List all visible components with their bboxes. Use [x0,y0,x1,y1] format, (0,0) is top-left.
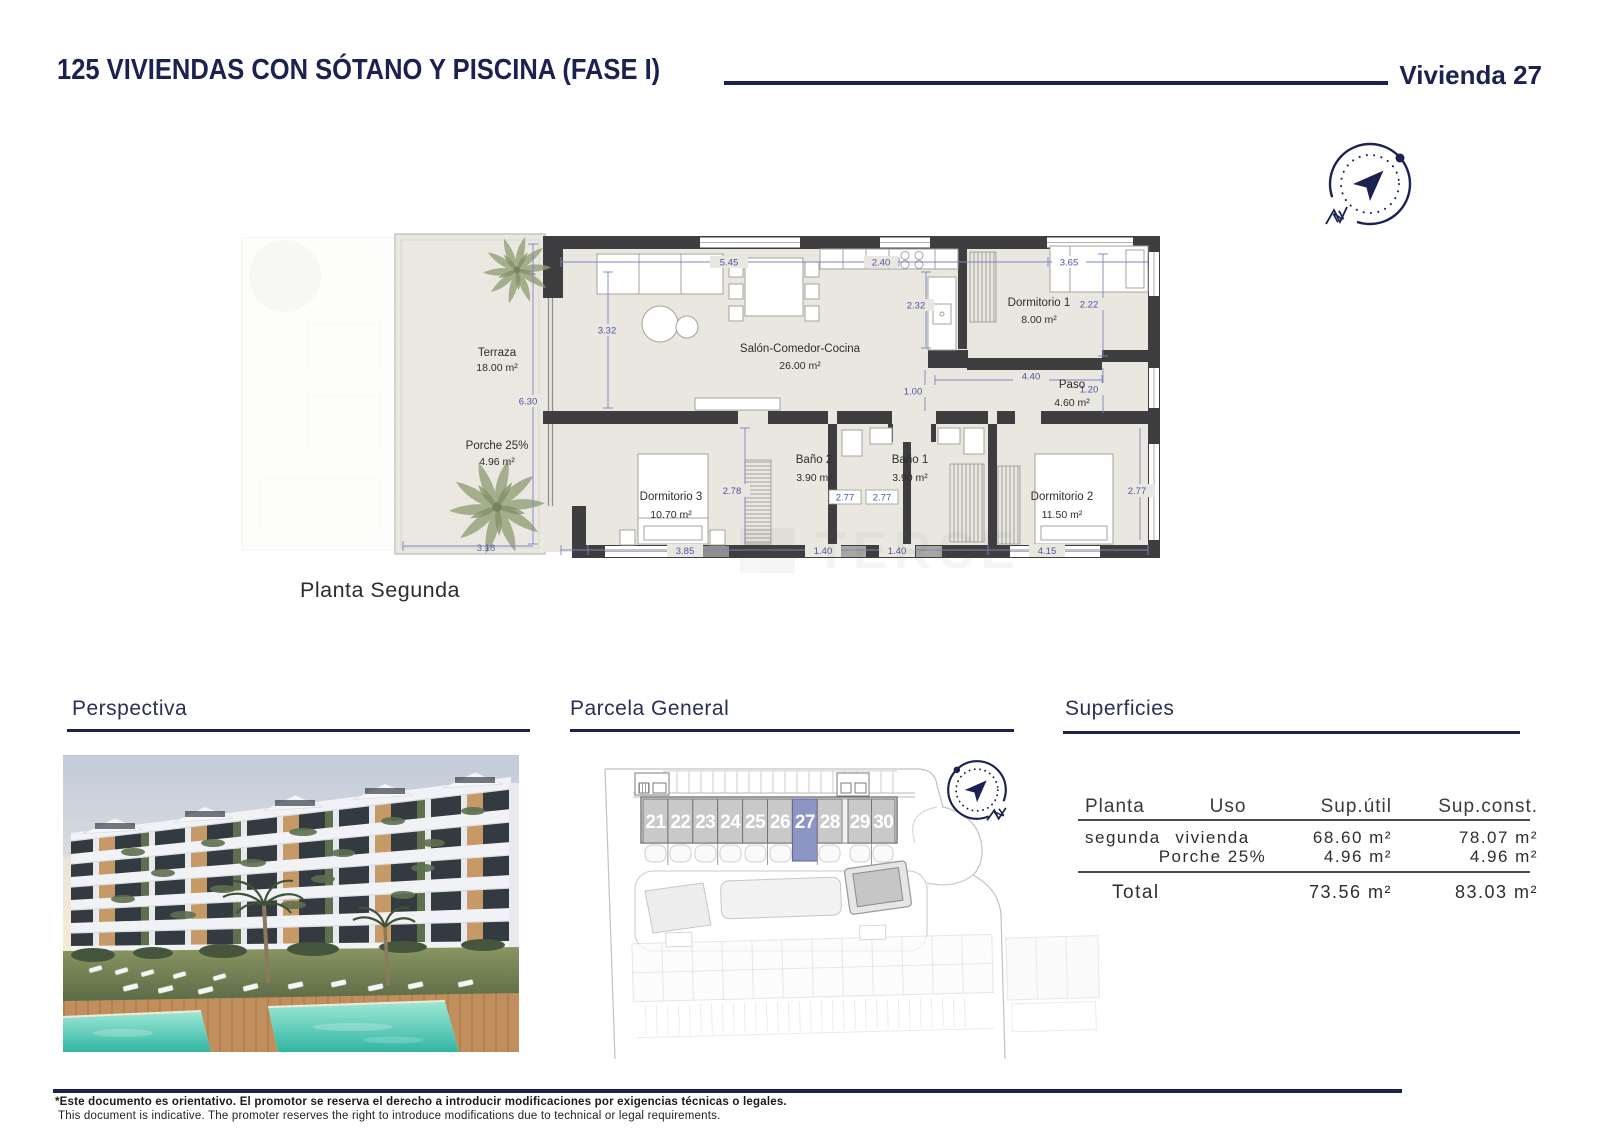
site-unit-label: 22 [670,812,690,833]
dim-label: 2.77 [836,493,855,504]
site-parking-top [633,771,915,797]
dim-label: 3.85 [676,546,695,557]
footer-rule [53,1089,1402,1093]
dim-label: 2.32 [907,301,926,312]
compass-arrow [1353,162,1392,201]
perspective-render [63,755,519,1052]
dim-label: 2.22 [1080,300,1099,311]
unit-label: Vivienda 27 [1399,60,1542,91]
section-superficies-title: Superficies [1065,697,1174,721]
room-area-salon: 26.00 m² [779,360,821,372]
room-label-dormitorio1: Dormitorio 1 [1008,297,1071,309]
room-label-dormitorio3: Dormitorio 3 [640,491,703,503]
site-unit-label: 29 [850,812,870,833]
section-perspectiva-title: Perspectiva [72,697,187,721]
cell-sup-const: 4.96 m² [1380,847,1538,867]
site-unit-label: 24 [720,812,741,833]
cell-sup-util: 4.96 m² [1240,847,1392,867]
dim-label: 4.40 [1022,372,1041,383]
site-phase2-strip [632,920,1101,1042]
site-building-strip: 21 22 23 24 25 26 27 28 29 30 [641,797,897,865]
site-unit-label: 23 [695,812,715,833]
header-rule [724,81,1388,85]
col-header-planta: Planta [1085,796,1145,818]
cell-sup-const: 78.07 m² [1380,828,1538,848]
north-compass-icon: N [1322,136,1418,232]
room-label-porche: Porche 25% [466,440,529,452]
site-unit-label: 25 [745,812,766,833]
room-area-porche: 4.96 m² [479,456,515,468]
dim-label: 2.77 [873,493,892,504]
room-area-dormitorio3: 10.70 m² [650,509,692,521]
section-parcela-title: Parcela General [570,697,729,721]
site-unit-numbers: 21 22 23 24 25 26 27 28 29 30 [645,812,893,833]
site-unit-label: 28 [820,812,840,833]
col-header-sup-util: Sup.útil [1240,796,1392,818]
room-label-paso: Paso [1059,379,1085,391]
site-stairwell [842,799,848,843]
compass-dot [1396,154,1405,163]
brochure-page: 125 VIVIENDAS CON SÓTANO Y PISCINA (FASE… [0,0,1600,1131]
table-total-rule [1078,871,1530,873]
col-header-sup-const: Sup.const. [1380,796,1538,818]
room-label-salon: Salón-Comedor-Cocina [740,343,861,355]
room-area-bano2: 3.90 m² [796,472,832,484]
room-label-terraza: Terraza [478,347,517,359]
table-header-rule [1078,819,1530,821]
parcela-rule [570,729,1014,732]
room-area-paso: 4.60 m² [1054,397,1090,409]
room-label-bano1: Baño 1 [892,454,928,466]
room-label-bano2: Baño 2 [796,454,832,466]
site-terraces [645,845,893,862]
watermark: TERCE [740,522,1021,580]
total-sup-util: 73.56 m² [1240,882,1392,903]
room-area-dormitorio1: 8.00 m² [1021,314,1057,326]
site-unit-label: 26 [770,812,790,833]
parcela-compass-icon: N [948,761,1007,822]
dim-label: 3.18 [477,543,496,554]
dim-label: 2.77 [1128,486,1147,497]
dim-label: 1.00 [904,387,923,398]
site-unit-label: 30 [873,812,893,833]
dim-label: 2.40 [872,258,891,269]
compass-north-label: N [1330,207,1346,226]
room-label-dormitorio2: Dormitorio 2 [1031,491,1094,503]
room-area-bano1: 3.90 m² [892,472,928,484]
total-label: Total [1112,882,1160,904]
room-area-terraza: 18.00 m² [476,362,518,374]
dim-label: 5.45 [720,258,739,269]
plan-caption: Planta Segunda [300,578,460,603]
svg-text:TERCE: TERCE [815,522,1021,580]
dim-label: 6.30 [519,397,538,408]
room-area-dormitorio2: 11.50 m² [1042,509,1083,521]
footer-disclaimer-es: *Este documento es orientativo. El promo… [55,1096,787,1108]
site-pool [844,860,912,914]
floor-plan: 5.45 2.40 3.65 3.32 2.32 2.22 6.30 3.18 … [240,228,1160,580]
site-unit-label: 21 [645,812,666,833]
site-unit-label: 27 [795,812,815,833]
dim-label: 3.65 [1060,258,1079,269]
page-title: 125 VIVIENDAS CON SÓTANO Y PISCINA (FASE… [57,54,660,87]
footer-disclaimer-en: This document is indicative. The promote… [58,1110,720,1122]
site-plan: 21 22 23 24 25 26 27 28 29 30 [575,743,1120,1063]
dim-label: 4.15 [1038,546,1057,557]
total-sup-const: 83.03 m² [1380,882,1538,903]
cell-sup-util: 68.60 m² [1240,828,1392,848]
superficies-rule [1063,731,1520,734]
perspectiva-rule [67,729,530,732]
dim-label: 2.78 [723,486,742,497]
ghost-neighbour-unit [242,238,395,550]
dim-label: 3.32 [598,326,617,337]
